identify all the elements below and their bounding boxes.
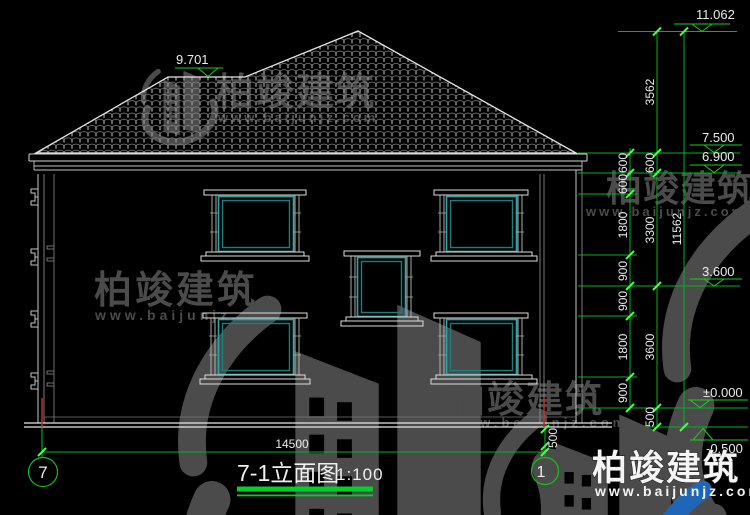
dim-text: 3562 [643,78,657,105]
cad-drawing: 柏竣建筑 www.baijunjz.com 柏竣建筑 www.baijunjz.… [0,0,750,515]
elevation-text-floor1: ±0.000 [703,385,743,400]
side-wall-sill-brackets [31,189,54,389]
elevation-text-peak: 11.062 [696,7,735,22]
drawing-title: 7-1立面图 [237,460,339,486]
brand-logo-site: www.baijunjz.com [594,483,750,499]
dim-width-text: 14500 [275,437,309,451]
axis-number-right: 1 [537,464,546,481]
dim-text: 1800 [616,333,630,360]
dim-text: 3600 [643,333,657,360]
window-1f-right [431,313,537,384]
dim-text: 900 [616,261,630,281]
title-block: 7-1立面图 1:100 [237,460,384,496]
watermark-site-text: www.baijunjz.com [94,307,280,323]
eave-cornice [29,154,587,170]
window-2f-right [431,190,537,261]
brand-logo-name: 柏竣建筑 [592,448,740,488]
axis-number-left: 7 [38,463,47,482]
dim-text: 600 [616,153,630,173]
dim-text: 600 [643,153,657,173]
elevation-drawing-canvas: 柏竣建筑 www.baijunjz.com 柏竣建筑 www.baijunjz.… [0,0,750,515]
window-glass-frame [447,197,517,252]
dim-text: 500 [546,428,560,448]
drawing-scale: 1:100 [336,465,384,484]
window-2f-left [201,190,309,261]
dim-text: 11562 [670,212,684,245]
roof-outline [36,31,576,153]
watermark-brand-text: 柏竣建筑 [94,270,258,312]
dim-text: 500 [643,407,657,427]
window-stair-center [341,251,423,326]
elevation-text-ridge: 9.701 [176,52,209,67]
elevation-marker-peak [674,24,730,32]
dim-text: 900 [616,291,630,311]
window-glass-frame [219,197,294,252]
elevation-text-eave-bottom: 6.900 [702,149,735,164]
title-underline-thin [237,495,373,497]
roof [36,31,576,153]
watermark-site-text: www.baijunjz.com [585,204,746,219]
dim-text: 3300 [643,216,657,243]
dim-text: 900 [616,383,630,403]
title-underline-thick [237,487,373,492]
elevation-text-eave-top: 7.500 [702,130,735,145]
dim-text: 1800 [616,211,630,238]
elevation-text-floor2: 3.600 [702,264,735,279]
dim-text: 600 [616,174,630,194]
